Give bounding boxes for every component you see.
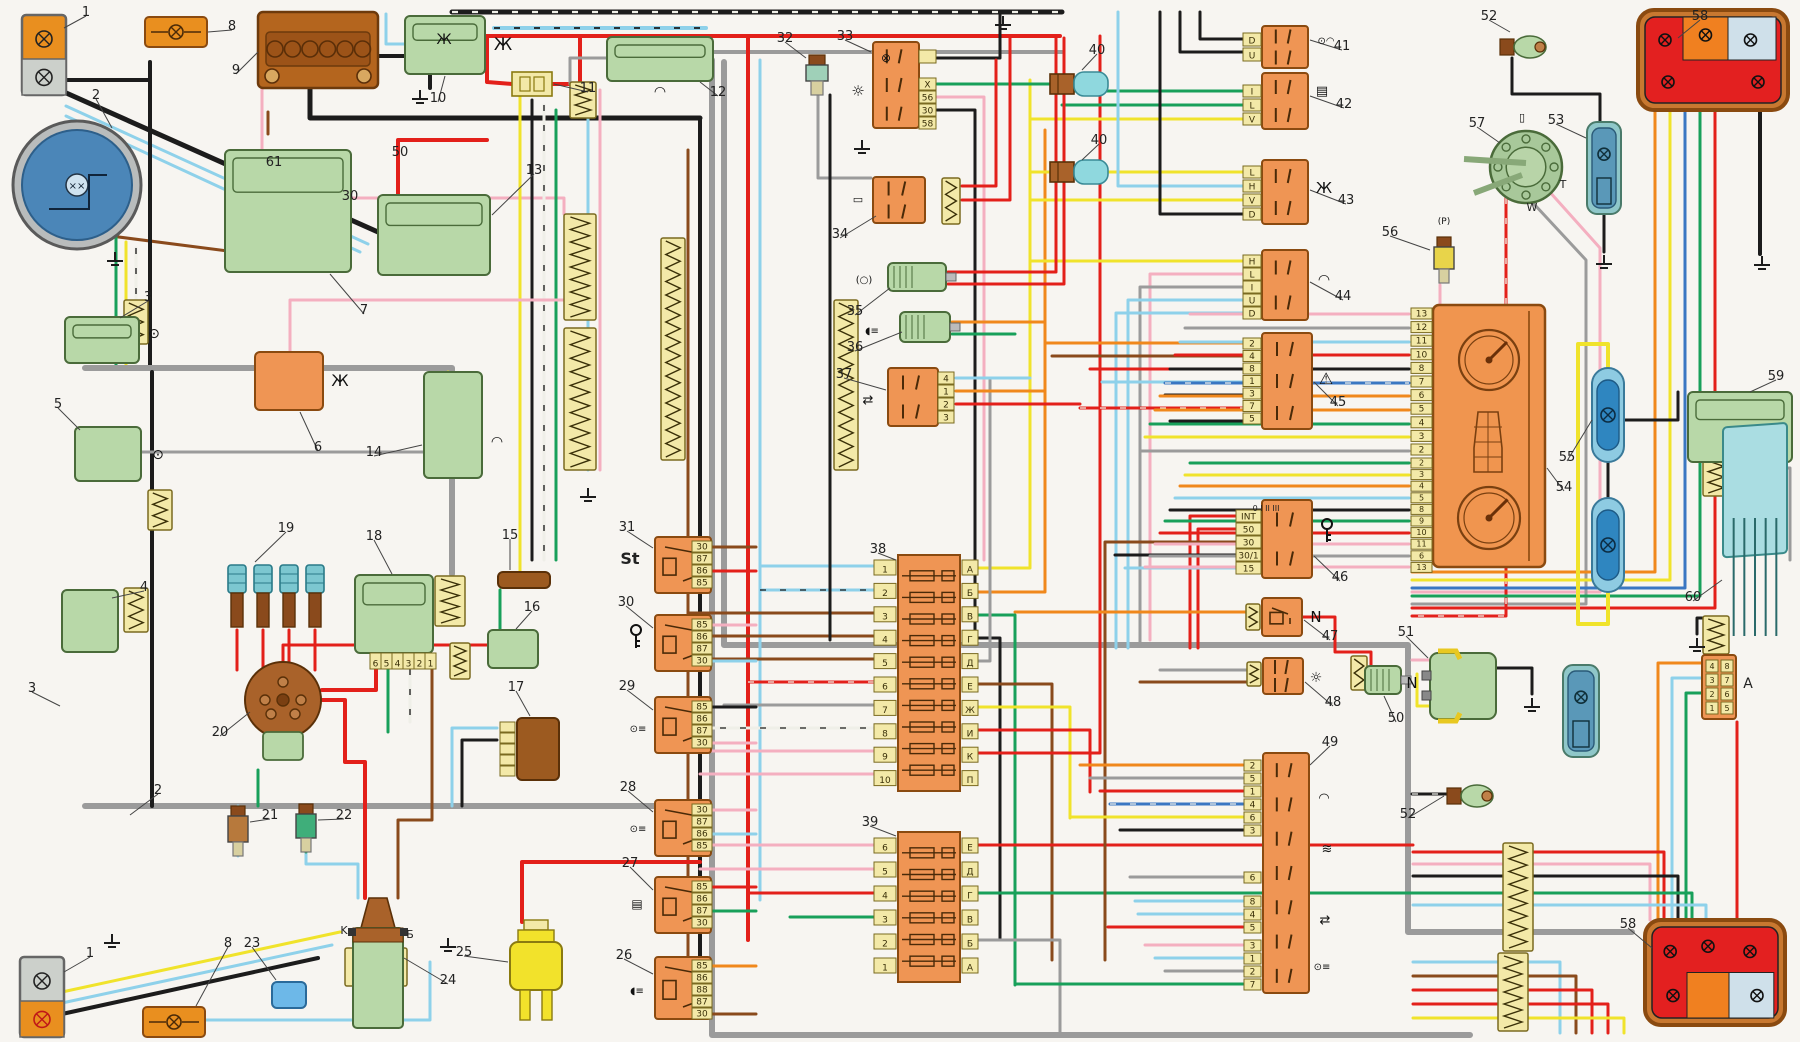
ground-symbol [412,90,428,103]
diagram-text: 8 [224,936,232,951]
diagram-text: 1 [82,5,90,20]
diagram-text: 30 [696,1010,708,1020]
diagram-text: 4 [1250,911,1256,921]
diagram-text: 4 [882,892,888,902]
diagram-text: А [967,964,974,974]
diagram-text: 4 [1250,801,1256,811]
harness-connector [1246,604,1260,630]
diagram-text: 87 [696,727,707,737]
diagram-text: Е [967,683,973,693]
symbol-icon: ▤ [631,897,642,911]
diagram-text: 30 [618,595,635,610]
diagram-text: 50 [1243,526,1255,536]
harness-connector [834,300,858,470]
diagram-text: 2 [1249,340,1255,350]
symbol-icon: ▤ [1316,84,1328,99]
terminal-pin [500,755,515,765]
component-front-marker-lamp-top [22,15,66,95]
diagram-text: L [1249,271,1254,281]
diagram-text: 9 [1419,517,1424,526]
wire [310,88,700,118]
diagram-text: 48 [1325,695,1342,710]
diagram-text: D [1249,211,1256,221]
symbol-icon: ⇄ [863,393,874,408]
diagram-text: 30 [342,189,359,204]
diagram-text: 45 [1330,395,1347,410]
diagram-text: 28 [620,780,637,795]
component-turn-flasher-top [145,17,207,47]
ground-symbol [1596,255,1612,268]
wire [1200,12,1243,39]
component-wiper-relay [607,37,713,81]
component-side-turn-lamp-bottom [1050,160,1108,184]
terminal-pin [500,733,515,743]
diagram-text: 6 [882,844,888,854]
diagram-text: 4 [882,636,888,646]
diagram-text: 3 [882,916,888,926]
diagram-text: 36 [847,340,864,355]
symbol-icon: ◠ [1318,791,1329,806]
component-reverse-lamp-relay [1262,598,1302,636]
diagram-text: 10 [1416,528,1426,537]
diagram-text: 2 [882,589,888,599]
component-washer-relay [255,352,323,410]
diagram-text: Ж [965,706,975,716]
harness-connector [564,214,596,320]
symbol-icon: ⊙≡ [1314,962,1331,973]
diagram-text: К [967,753,974,763]
diagram-text: 15 [1243,565,1254,575]
diagram-text: 30/1 [1238,552,1258,562]
wiring-diagram-canvas: ××65432130878685858687308586873030878685… [0,0,1800,1042]
symbol-icon: ⊙◠ [1317,36,1334,47]
diagram-text: W [1527,201,1538,214]
diagram-text: 59 [1768,369,1785,384]
component-tail-lamp-top [1638,10,1788,110]
diagram-text: 29 [619,679,636,694]
component-turn-hazard-breaker: 4123 [888,368,954,426]
diagram-text: 30 [696,919,708,929]
diagram-text: 16 [524,600,541,615]
symbol-icon: Ж [1316,179,1332,197]
diagram-text: 87 [696,998,707,1008]
diagram-text: 87 [696,818,707,828]
symbol-icon: ≋ [1322,842,1333,857]
diagram-text: 40 [1089,43,1106,58]
diagram-text: 5 [882,659,888,669]
diagram-text: 7 [1250,981,1256,991]
diagram-text: 5 [1419,493,1424,502]
diagram-text: 35 [847,304,864,319]
component-ignition-coil [348,898,408,1028]
diagram-text: 56 [922,94,934,104]
diagram-text: 85 [696,621,707,631]
diagram-text: 6 [1724,690,1729,699]
diagram-text: 26 [616,948,633,963]
component-fuse-holder [512,72,552,96]
component-interior-light-switch [1263,658,1303,694]
diagram-text: 41 [1334,39,1351,54]
diagram-text: 8 [228,19,236,34]
label-leader [196,947,228,1006]
diagram-text: 3 [406,660,412,670]
diagram-text: 58 [1692,9,1709,24]
diagram-text: 6 [1250,814,1256,824]
wire [978,615,1015,985]
component-headlight-relay: 85868730 [655,697,712,753]
symbol-icon: ☼ [1310,670,1323,686]
diagram-text: Д [966,868,973,878]
component-low-beam-relay: 30878685 [655,800,712,856]
diagram-text: 30 [922,107,934,117]
diagram-text: 11 [1416,540,1426,549]
label-leader [252,947,276,980]
component-washer-pump-left [62,590,118,652]
wire [1413,905,1706,920]
ground-symbol [995,16,1011,29]
diagram-text: 56 [1382,225,1399,240]
diagram-text: 2 [882,940,888,950]
diagram-text: 12 [1416,323,1427,333]
wire [978,940,1060,1035]
diagram-text: 3 [1419,432,1425,442]
diagram-text: H [1249,258,1256,268]
diagram-text: I [1251,88,1254,98]
diagram-text: 30 [696,543,708,553]
diagram-text: 86 [696,715,708,725]
symbol-icon: ⚠ [1319,369,1333,388]
diagram-text: V [1249,197,1256,207]
component-fog-lamp-relay: 8586888730 [655,957,712,1020]
component-front-marker-lamp-bottom [20,957,64,1037]
component-headlamp-wiper-motor-top [65,317,139,363]
diagram-text: 3 [144,290,152,305]
wire [552,38,580,84]
diagram-text: 19 [278,521,295,536]
diagram-text: 2 [1419,459,1424,468]
harness-connector [1503,843,1533,951]
diagram-text: Б [406,928,414,941]
component-ignition-relay: 85868730 [655,615,712,671]
component-license-plate-lamp-top [1587,122,1621,214]
diagram-text: 21 [262,808,279,823]
diagram-text: 51 [1398,625,1415,640]
wire [322,669,376,690]
diagram-text: 9 [882,753,888,763]
diagram-text: 85 [696,883,707,893]
diagram-text: 4 [943,375,949,385]
component-cigarette-lighter [873,177,925,223]
diagram-text: 58 [922,120,934,130]
harness-connector [148,490,172,530]
ground-symbol [580,488,596,501]
terminal-pin [919,50,936,63]
symbol-icon: ⊙ [148,326,160,342]
diagram-text: 42 [1336,97,1353,112]
diagram-text: 7 [1249,402,1255,412]
diagram-text: 7 [882,706,888,716]
diagram-text: 27 [622,856,639,871]
diagram-text: 43 [1338,193,1355,208]
diagram-text: 4 [1709,662,1714,671]
component-license-plate-lamp-bottom [1563,665,1599,757]
component-washer-valve-sensor [806,55,828,95]
diagram-text: 2 [92,88,100,103]
wire [1198,529,1238,648]
harness-connector [1498,953,1528,1031]
component-spark-plug-1 [228,565,246,627]
diagram-text: 18 [366,529,383,544]
component-starter-relay: 30878685 [655,537,712,593]
diagram-text: 8 [882,729,888,739]
diagram-text: St [620,549,640,568]
symbol-icon: ⇄ [1320,913,1331,928]
diagram-text: 2 [1250,762,1256,772]
symbol-icon: N [1310,608,1321,626]
diagram-text: 12 [710,85,727,100]
component-side-turn-lamp-top [1050,72,1108,96]
wire [1413,962,1560,1033]
diagram-text: 39 [862,815,879,830]
diagram-text: 86 [696,974,708,984]
diagram-text: 3 [1419,470,1424,479]
component-coolant-temp-sensor [296,804,316,852]
wire [962,38,1010,200]
diagram-text: 2 [1419,446,1425,456]
diagram-text: 2 [154,783,162,798]
symbol-icon: (○) [856,275,873,286]
diagram-text: 6 [1419,391,1425,401]
harness-connector [435,576,465,626]
diagram-text: 54 [1556,480,1573,495]
wire [1413,876,1678,920]
diagram-text: 5 [1250,924,1256,934]
symbol-icon: ⊙≡ [630,724,647,735]
diagram-text: 6 [314,440,322,455]
wire [1116,313,1243,648]
diagram-text: 3 [943,414,949,424]
diagram-text: 47 [1322,629,1339,644]
diagram-text: 5 [1724,704,1729,713]
diagram-text: 49 [1322,735,1339,750]
diagram-text: 30 [696,806,708,816]
component-heated-rear-window [1723,423,1787,636]
symbol-icon: Ж [436,32,451,48]
label-leader [492,174,534,215]
component-alternator [225,150,351,272]
component-turn-flasher-bottom [143,1007,205,1037]
wire [978,707,1070,818]
diagram-text: 13 [1416,310,1427,320]
diagram-text: 44 [1335,289,1352,304]
terminal-pin [500,722,515,732]
diagram-text: 5 [1249,415,1255,425]
diagram-text: 10 [879,776,891,786]
label-leader [255,532,286,562]
diagram-text: 38 [870,542,887,557]
component-hazard-switch: 2481375 [1243,333,1312,429]
wire [962,60,996,186]
diagram-text: 88 [696,986,708,996]
diagram-text: 6 [373,660,379,670]
wire [948,38,1056,272]
wire [978,730,1090,792]
component-tail-lamp-bottom [1645,920,1785,1025]
diagram-text: Б [967,589,973,599]
component-battery [258,12,378,88]
component-distributor [245,662,321,760]
diagram-text: U [1249,297,1256,307]
wire [978,80,1030,568]
diagram-text: 30 [1243,539,1255,549]
component-horn-speaker [500,718,559,780]
component-ballast-resistor [498,572,550,588]
diagram-text: H [1249,183,1256,193]
symbol-icon: (P) [1438,217,1450,227]
diagram-text: И [967,729,974,739]
harness-connector [661,238,685,460]
diagram-text: 3 [1709,676,1714,685]
diagram-text: Г [967,636,973,646]
diagram-text: 1 [1250,955,1256,965]
diagram-text: 2 [417,660,423,670]
component-rear-wiper-switch: HLIUD [1243,250,1308,320]
diagram-text: 25 [456,945,473,960]
diagram-text: 5 [54,397,62,412]
diagram-text: 1 [943,388,949,398]
wire [1497,668,1532,694]
component-washer-reservoir-pump [510,920,562,1020]
symbol-icon: ☼ [851,82,864,100]
component-ignition-module: 654321 [355,575,436,670]
wiring-diagram: ××65432130878685858687308586873030878685… [0,0,1800,1042]
component-dome-lamp-upper [1592,368,1624,462]
wire [1686,693,1701,920]
diagram-text: 15 [502,528,519,543]
diagram-text: 53 [1548,113,1565,128]
diagram-text: 22 [336,808,353,823]
symbol-icon: ◠ [491,434,503,450]
diagram-text: 32 [777,31,794,46]
diagram-text: 7 [1724,676,1729,685]
diagram-text: 50 [392,145,409,160]
harness-connector [1703,616,1729,654]
diagram-text: 3 [1249,390,1255,400]
symbol-icon: ⊙≡ [630,824,647,835]
diagram-text: 4 [1419,418,1425,428]
diagram-text: В [967,612,973,622]
diagram-text: 8 [1419,505,1424,514]
diagram-text: 1 [428,660,434,670]
component-washer-pump-small [272,982,306,1008]
label-leader [32,692,60,706]
component-side-repeater-top [1500,36,1546,58]
diagram-text: 3 [1250,827,1256,837]
wire [306,852,358,898]
diagram-text: ×× [69,181,86,192]
diagram-text: 24 [440,973,457,988]
harness-connector [942,178,960,224]
diagram-text: INT [1241,513,1256,523]
diagram-text: 85 [696,703,707,713]
diagram-text: 20 [212,725,229,740]
diagram-text: 55 [1559,450,1576,465]
diagram-text: 1 [1249,377,1255,387]
diagram-text: X [924,81,930,91]
ground-symbol [440,938,456,951]
wire [398,140,487,198]
diagram-text: Г [967,892,973,902]
symbol-icon: ◖≡ [630,986,644,997]
component-heated-window-switch: ILV [1243,73,1308,129]
terminal-pin [500,744,515,754]
diagram-text: 0 I II III [1253,504,1280,513]
component-starter-solenoid [488,630,538,668]
diagram-text: 46 [1332,570,1349,585]
diagram-text: U [1249,52,1256,62]
wire [1413,852,1664,920]
diagram-text: 6 [1419,551,1424,560]
symbol-icon: ⊗ [881,51,891,65]
symbol-icon: N [1406,674,1417,692]
diagram-text: 8 [1250,898,1256,908]
harness-connector [450,643,470,679]
diagram-text: 10 [1416,350,1428,360]
diagram-text: 57 [1469,116,1486,131]
diagram-text: I [1251,284,1254,294]
diagram-text: 4 [1419,482,1424,491]
diagram-text: 1 [1709,704,1714,713]
wire [948,38,1064,284]
diagram-text: 58 [1620,917,1637,932]
diagram-text: D [1249,310,1256,320]
diagram-text: 33 [837,29,854,44]
diagram-text: 4 [1249,352,1255,362]
component-side-repeater-bottom [1447,785,1493,807]
diagram-text: 9 [232,63,240,78]
diagram-text: 52 [1400,807,1417,822]
diagram-text: 5 [1419,405,1425,415]
component-horn [1422,651,1496,721]
diagram-text: 1 [86,946,94,961]
symbol-icon: ▯ [1519,111,1525,124]
diagram-text: 5 [882,868,888,878]
symbol-icon: ◖≡ [865,326,879,337]
symbol-icon: ◠ [1318,272,1330,288]
diagram-text: 31 [619,520,636,535]
ground-symbol [854,140,870,153]
component-fuel-tank-sender [1464,131,1562,203]
diagram-text: 87 [696,907,707,917]
diagram-text: П [967,776,974,786]
diagram-text: 14 [366,445,383,460]
diagram-text: 85 [696,842,707,852]
component-wiper-washer-switch: DU [1243,26,1308,68]
diagram-text: 86 [696,895,708,905]
key-icon [631,625,641,648]
diagram-text: 13 [1416,563,1426,572]
component-brake-light-switch [888,263,956,291]
diagram-text: 11 [1416,337,1427,347]
component-rear-connector-a: 48372615 [1702,655,1736,719]
diagram-text: 6 [882,683,888,693]
symbol-icon: Ж [331,371,348,390]
ground-symbol [1754,256,1770,269]
ground-symbol [104,934,120,947]
symbol-icon: ◠ [654,84,666,100]
diagram-text: 2 [943,401,949,411]
diagram-text: 30 [696,657,708,667]
